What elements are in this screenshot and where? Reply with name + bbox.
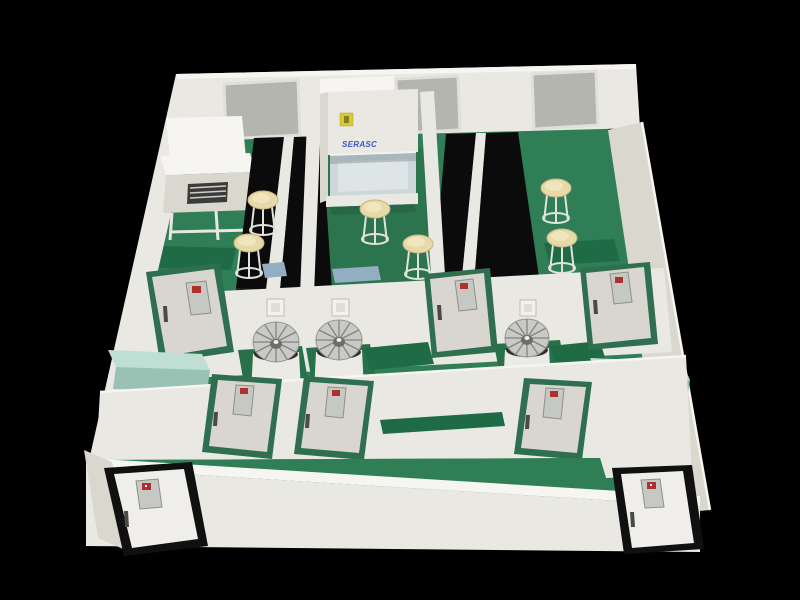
door-upper-2 — [424, 268, 498, 358]
lab-3d-rendering: SERASC — [0, 0, 800, 600]
render-stage: SERASC — [0, 0, 800, 600]
switch-box-3 — [520, 300, 536, 316]
door-sign — [550, 391, 558, 397]
cabinet-side — [320, 92, 328, 203]
stool-1 — [248, 191, 278, 235]
window-panel-3 — [532, 71, 598, 129]
door-sign-glyph — [650, 484, 652, 486]
door-upper-3 — [580, 262, 658, 350]
warning-sticker-glyph — [344, 116, 349, 123]
stool-5 — [541, 179, 571, 223]
door-upper-1 — [146, 263, 234, 363]
switch-box-1 — [267, 299, 284, 316]
door-lower-3 — [514, 378, 592, 460]
door-sign — [192, 286, 201, 293]
door-lower-1 — [202, 374, 282, 459]
floor-drain-1 — [262, 262, 287, 278]
exit-door-right — [612, 465, 704, 554]
door-sign — [460, 283, 468, 289]
stool-2 — [234, 234, 264, 278]
door-sign — [332, 390, 340, 396]
desk-top — [160, 153, 256, 175]
cabinet-glass-inner — [338, 159, 408, 192]
stool-6 — [547, 229, 577, 273]
stool-3 — [360, 200, 390, 244]
door-sign-glyph — [145, 485, 147, 487]
brand-label: SERASC — [342, 140, 377, 149]
door-sign — [240, 388, 248, 394]
door-window — [610, 272, 632, 304]
door-lower-2 — [294, 376, 374, 460]
stool-4 — [403, 235, 433, 279]
door-sign — [615, 277, 623, 283]
biosafety-cabinet: SERASC — [320, 89, 418, 215]
floor-drain-2 — [332, 266, 381, 283]
switch-box-2 — [332, 299, 349, 316]
workstation-back-panel — [166, 116, 246, 160]
